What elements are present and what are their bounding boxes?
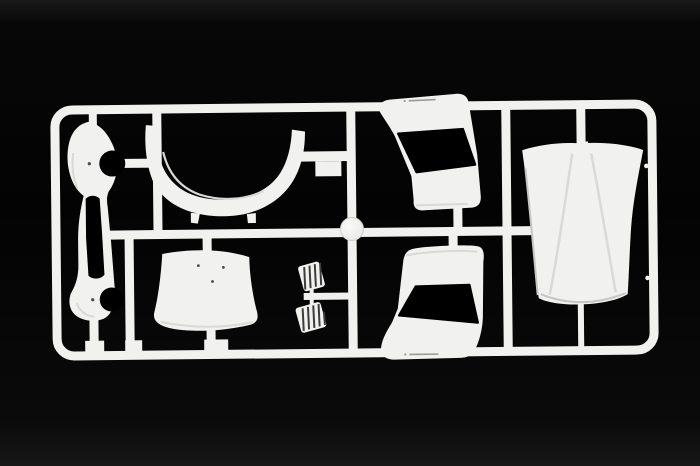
- gate-foot: [85, 341, 104, 352]
- sprue-photo: [0, 0, 700, 466]
- gate-foot: [125, 340, 142, 351]
- arch-tab: [247, 213, 256, 223]
- photo-stage: [0, 0, 700, 466]
- arch-connector-upper: [299, 151, 351, 162]
- runner-v2: [129, 233, 130, 352]
- runner-v4: [506, 106, 509, 348]
- gate-foot: [204, 339, 228, 350]
- arch-connector-lower: [315, 161, 341, 176]
- center-runner: [110, 231, 534, 235]
- part-round-cap: [340, 217, 363, 240]
- part-cowl-panel: [153, 250, 257, 332]
- part-engine-cover: [522, 142, 645, 305]
